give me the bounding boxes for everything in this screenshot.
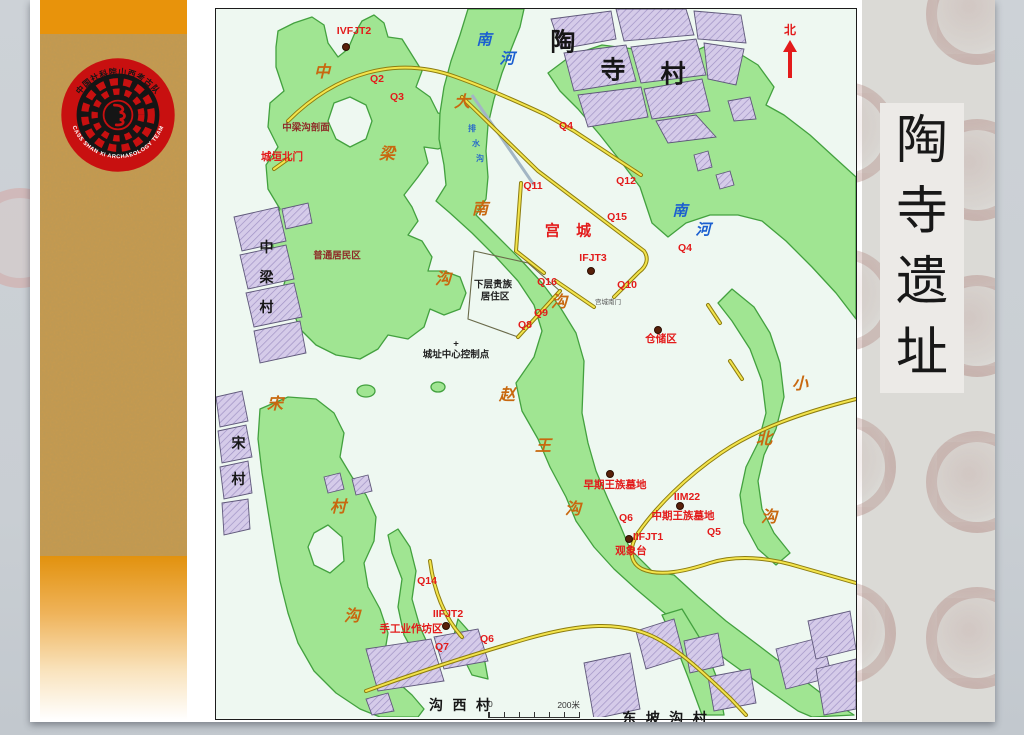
map-label: 南 bbox=[476, 34, 491, 49]
map-label: 手工业作坊区 bbox=[380, 624, 443, 635]
map-label: 村 bbox=[660, 63, 687, 88]
map-label: Q8 bbox=[518, 320, 532, 331]
map-label: IIFJT2 bbox=[433, 609, 463, 620]
map-label: 水 bbox=[472, 140, 480, 148]
map-label: 河 bbox=[499, 53, 514, 68]
map-label: IIM22 bbox=[674, 492, 700, 503]
map-label: Q9 bbox=[534, 308, 548, 319]
map-label: 寺 bbox=[600, 59, 627, 84]
map-label: 沟 bbox=[551, 295, 567, 311]
map-label: 宋 bbox=[232, 438, 249, 452]
map-label: 中 bbox=[314, 65, 330, 81]
map-label: 中期王族墓地 bbox=[652, 511, 715, 522]
excavation-dot bbox=[606, 470, 614, 478]
map-label: 排 bbox=[468, 125, 476, 133]
map-label: Q7 bbox=[435, 642, 449, 653]
map-label: Q4 bbox=[559, 121, 573, 132]
map-label: 沟 bbox=[476, 155, 484, 163]
map-label: 小 bbox=[792, 377, 808, 393]
excavation-dot bbox=[587, 267, 595, 275]
scale-zero: 0 bbox=[488, 699, 493, 711]
site-map: 陶寺村中梁村宋村沟 西 村东 坡 沟 村南河南河排水沟中梁沟大南沟赵王沟小北沟宋… bbox=[215, 8, 857, 720]
expedition-seal-logo: 中国社科院山西考古队 CASS SHAN XI ARCHAEOLOGY TEAM bbox=[55, 52, 181, 178]
map-label: 村 bbox=[260, 302, 277, 316]
map-label: Q4 bbox=[678, 243, 692, 254]
scale-ticks bbox=[488, 712, 580, 718]
map-label: 北 bbox=[756, 432, 772, 448]
excavation-dot bbox=[342, 43, 350, 51]
map-label: 河 bbox=[695, 224, 710, 239]
scale-end: 200米 bbox=[557, 699, 580, 711]
title-character: 址 bbox=[896, 321, 948, 387]
map-label: 沟 bbox=[565, 502, 581, 518]
map-label: 宋 bbox=[267, 397, 283, 413]
map-label: 沟 bbox=[761, 510, 777, 526]
map-label: 普通居民区 bbox=[313, 251, 361, 261]
map-label: 观象台 bbox=[615, 546, 647, 557]
map-label: 梁 bbox=[260, 272, 277, 286]
map-label: 中梁沟剖面 bbox=[282, 123, 330, 133]
map-label: 宫城南门 bbox=[595, 300, 621, 307]
map-label: 大 bbox=[454, 95, 470, 111]
north-arrow-icon bbox=[783, 40, 797, 52]
title-character: 陶 bbox=[896, 109, 948, 175]
excavation-dot bbox=[442, 622, 450, 630]
title-character: 寺 bbox=[896, 180, 948, 246]
map-label: 东 坡 沟 村 bbox=[622, 713, 710, 722]
map-label: 赵 bbox=[499, 388, 515, 404]
north-arrow: 北 bbox=[774, 21, 806, 78]
map-label: 南 bbox=[472, 202, 488, 218]
map-label: 宫 城 bbox=[545, 224, 597, 239]
map-label: 城址中心控制点 bbox=[423, 350, 490, 360]
map-label: 下层贵族 bbox=[474, 280, 512, 290]
map-label: Q3 bbox=[390, 92, 404, 103]
map-label: IIFJT1 bbox=[633, 532, 663, 543]
map-label: 沟 西 村 bbox=[429, 700, 493, 714]
map-label: 沟 bbox=[435, 272, 451, 288]
map-label: Q5 bbox=[707, 527, 721, 538]
title-character: 遗 bbox=[896, 250, 948, 316]
page-title: 陶寺遗址 bbox=[880, 103, 964, 393]
sidebar: 中国社科院山西考古队 CASS SHAN XI ARCHAEOLOGY TEAM bbox=[40, 0, 187, 720]
map-label: 中 bbox=[260, 242, 277, 256]
map-label: 梁 bbox=[379, 147, 395, 163]
map-label: IFJT3 bbox=[579, 253, 606, 264]
map-label: Q6 bbox=[619, 513, 633, 524]
map-label: Q16 bbox=[537, 277, 557, 288]
excavation-dot bbox=[654, 326, 662, 334]
sidebar-top-band bbox=[40, 0, 187, 34]
slide: 陶寺遗址 bbox=[30, 0, 995, 722]
map-label: Q14 bbox=[417, 576, 437, 587]
map-labels: 陶寺村中梁村宋村沟 西 村东 坡 沟 村南河南河排水沟中梁沟大南沟赵王沟小北沟宋… bbox=[216, 9, 856, 717]
map-label: 村 bbox=[232, 474, 249, 488]
map-label: 仓储区 bbox=[645, 334, 677, 345]
map-label: 沟 bbox=[344, 609, 360, 625]
scale-bar: 0 200米 bbox=[488, 699, 580, 718]
map-label: 南 bbox=[672, 205, 687, 220]
map-label: Q6 bbox=[480, 634, 494, 645]
map-label: 早期王族墓地 bbox=[584, 480, 647, 491]
map-label: 村 bbox=[330, 500, 346, 516]
map-label: Q11 bbox=[523, 181, 542, 192]
map-label: 居住区 bbox=[481, 292, 510, 302]
map-label: 王 bbox=[535, 439, 551, 455]
map-label: 陶 bbox=[550, 31, 577, 56]
presentation-page: 陶寺遗址 bbox=[0, 0, 1024, 735]
sidebar-bottom-fade bbox=[40, 556, 187, 720]
map-label: Q2 bbox=[370, 74, 384, 85]
excavation-dot bbox=[625, 535, 633, 543]
map-label: IVFJT2 bbox=[337, 26, 371, 37]
map-label: Q10 bbox=[617, 280, 637, 291]
map-label: + bbox=[453, 339, 459, 349]
map-label: Q15 bbox=[607, 212, 627, 223]
north-label: 北 bbox=[774, 21, 806, 38]
map-label: Q12 bbox=[616, 176, 636, 187]
excavation-dot bbox=[676, 502, 684, 510]
map-label: 城垣北门 bbox=[261, 152, 303, 163]
